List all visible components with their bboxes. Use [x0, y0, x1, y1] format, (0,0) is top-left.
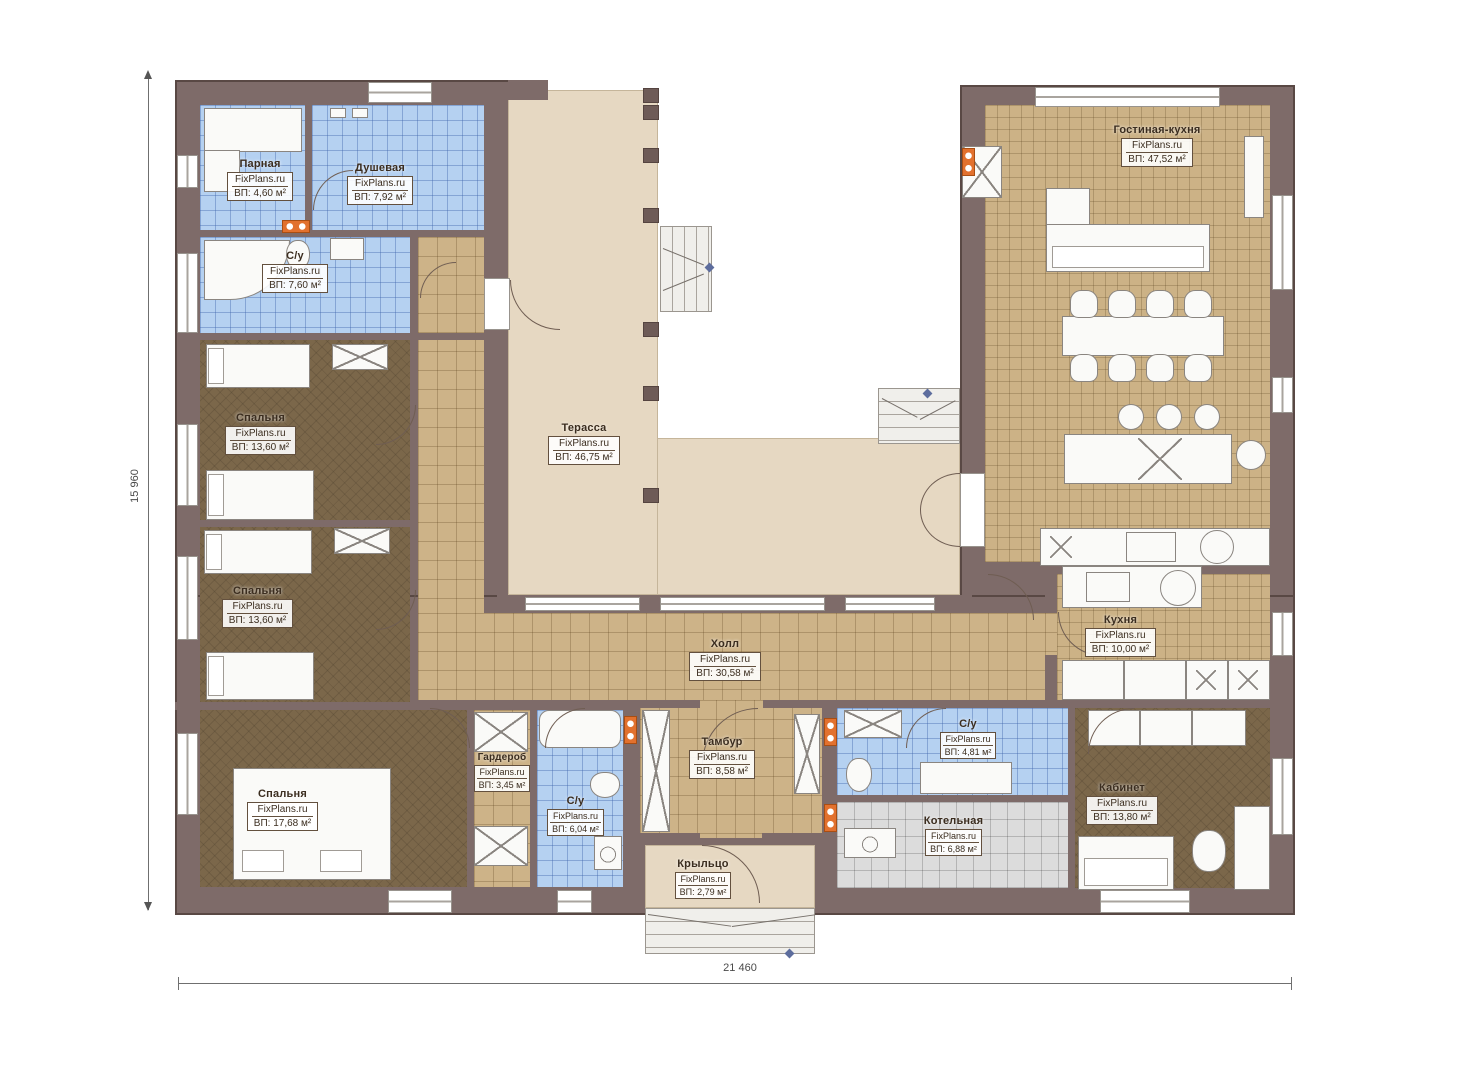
- watermark: FixPlans.ru: [694, 653, 755, 667]
- sink-cabinet-su3: [920, 762, 1012, 794]
- room-name: Гостиная-кухня: [1092, 124, 1222, 136]
- bar-stool-1: [1118, 404, 1144, 430]
- room-label-terrace: Терасса FixPlans.ru ВП: 46,75 м²: [528, 422, 640, 465]
- room-box: FixPlans.ru ВП: 3,45 м²: [474, 765, 531, 792]
- bar-stool-4: [1236, 440, 1266, 470]
- room-box: FixPlans.ru ВП: 10,00 м²: [1085, 628, 1156, 657]
- sink-basin-round: [1160, 570, 1196, 606]
- terrace-stairs-main: [878, 388, 960, 444]
- room-label-dushevaya: Душевая FixPlans.ru ВП: 7,92 м²: [320, 162, 440, 205]
- dining-chair-6: [1108, 354, 1136, 382]
- room-name: Душевая: [320, 162, 440, 174]
- island-cooktop: [1138, 438, 1182, 480]
- room-name: Спальня: [200, 585, 315, 597]
- room-name: Холл: [670, 638, 780, 650]
- room-label-su2: С/у FixPlans.ru ВП: 6,04 м²: [528, 795, 623, 837]
- window-bottom-1: [388, 890, 452, 913]
- vent-tambur-2: [824, 804, 837, 832]
- room-area: ВП: 4,81 м²: [943, 746, 994, 758]
- dining-chair-3: [1146, 290, 1174, 318]
- wall-su3-boiler: [837, 795, 1068, 802]
- room-label-bedroom3: Спальня FixPlans.ru ВП: 17,68 м²: [225, 788, 340, 831]
- sink-rect: [1086, 572, 1130, 602]
- corridor-terrace-opening: [484, 278, 510, 330]
- office-cabinet-3: [1192, 710, 1246, 746]
- room-label-parnaya: Парная FixPlans.ru ВП: 4,60 м²: [205, 158, 315, 201]
- terrace-door-opening: [960, 473, 985, 547]
- dimension-line-horizontal: [178, 983, 1292, 984]
- kitchen-cabinet-2: [1124, 660, 1186, 700]
- wardrobe-bedroom2: [334, 528, 390, 554]
- counter-sink-round: [1200, 530, 1234, 564]
- watermark: FixPlans.ru: [1126, 139, 1187, 153]
- wardrobe-bedroom1: [332, 344, 388, 370]
- window-right-4: [1272, 758, 1293, 835]
- room-box: FixPlans.ru ВП: 7,60 м²: [262, 264, 328, 293]
- window-right-2: [1272, 377, 1293, 413]
- room-label-su3: С/у FixPlans.ru ВП: 4,81 м²: [918, 718, 1018, 760]
- wall-tambur-front: [640, 833, 700, 845]
- dining-table: [1062, 316, 1224, 356]
- floor-terrace-strip: [508, 90, 658, 595]
- room-area: ВП: 10,00 м²: [1090, 643, 1151, 656]
- room-label-office: Кабинет FixPlans.ru ВП: 13,80 м²: [1062, 782, 1182, 825]
- wall-hall-s3: [585, 700, 700, 708]
- dimension-line-vertical: [148, 78, 149, 910]
- window-right-3: [1272, 612, 1293, 656]
- room-box: FixPlans.ru ВП: 2,79 м²: [675, 872, 732, 899]
- wardrobe-box-bottom: [474, 826, 528, 866]
- watermark: FixPlans.ru: [352, 177, 408, 191]
- pillow-bedroom3-left: [242, 850, 284, 872]
- terrace-stairs-side: [660, 226, 712, 312]
- room-box: FixPlans.ru ВП: 13,80 м²: [1086, 796, 1157, 825]
- sofa-seat-line: [1052, 246, 1204, 268]
- pillow-bedroom2-bottom: [208, 656, 224, 696]
- dining-chair-2: [1108, 290, 1136, 318]
- dimension-height-label: 15 960: [129, 451, 141, 521]
- vent-sauna: [282, 220, 310, 233]
- watermark: FixPlans.ru: [928, 830, 979, 843]
- counter-burner: [1050, 536, 1072, 558]
- room-box: FixPlans.ru ВП: 13,60 м²: [225, 426, 296, 455]
- wall-tambur-front2: [762, 833, 822, 845]
- terrace-column-6: [643, 386, 659, 401]
- room-name: Парная: [205, 158, 315, 170]
- terrace-column-7: [643, 488, 659, 503]
- sauna-bench-top: [204, 108, 302, 152]
- terrace-hall-window-2: [660, 597, 825, 611]
- terrace-column-1: [643, 88, 659, 103]
- wall-hall-s1: [418, 700, 430, 708]
- room-name: Гардероб: [462, 752, 542, 763]
- wall-hall-s6: [1130, 700, 1270, 708]
- terrace-column-3: [643, 148, 659, 163]
- room-area: ВП: 6,88 м²: [928, 843, 979, 855]
- toilet-su3: [846, 758, 872, 792]
- window-bottom-2: [557, 890, 592, 913]
- tv-cabinet: [1244, 136, 1264, 218]
- terrace-column-4: [643, 208, 659, 223]
- bar-stool-3: [1194, 404, 1220, 430]
- room-area: ВП: 8,58 м²: [694, 765, 750, 778]
- pillow-bedroom3-right: [320, 850, 362, 872]
- window-top-left-wing: [368, 82, 432, 103]
- wall-kitchen-left-b: [1045, 655, 1057, 700]
- dining-chair-8: [1184, 354, 1212, 382]
- room-box: FixPlans.ru ВП: 46,75 м²: [548, 436, 619, 465]
- wall-corridor-b: [410, 298, 418, 405]
- watermark: FixPlans.ru: [267, 265, 323, 279]
- office-chair: [1192, 830, 1226, 872]
- shower-fixture-2: [352, 108, 368, 118]
- room-name: Кухня: [1068, 614, 1173, 626]
- watermark: FixPlans.ru: [678, 873, 729, 886]
- dining-chair-4: [1184, 290, 1212, 318]
- room-box: FixPlans.ru ВП: 47,52 м²: [1121, 138, 1192, 167]
- vent-tambur-1: [824, 718, 837, 746]
- pillow-bedroom1-top: [208, 348, 224, 384]
- window-right-1: [1272, 195, 1293, 290]
- room-area: ВП: 46,75 м²: [553, 451, 614, 464]
- room-name: С/у: [528, 795, 623, 807]
- room-name: Тамбур: [662, 736, 782, 748]
- floor-terrace-main: [657, 438, 960, 595]
- wall-corridor-a: [410, 237, 418, 262]
- room-label-bedroom1: Спальня FixPlans.ru ВП: 13,60 м²: [203, 412, 318, 455]
- room-box: FixPlans.ru ВП: 4,81 м²: [940, 732, 997, 759]
- dimension-arrow-top: [144, 70, 152, 79]
- kitchen-cabinet-1: [1062, 660, 1124, 700]
- room-name: Спальня: [203, 412, 318, 424]
- shower-fixture-1: [330, 108, 346, 118]
- window-left-3: [177, 424, 198, 506]
- room-area: ВП: 17,68 м²: [252, 817, 313, 830]
- room-box: FixPlans.ru ВП: 7,92 м²: [347, 176, 413, 205]
- watermark: FixPlans.ru: [550, 810, 601, 823]
- room-label-hall: Холл FixPlans.ru ВП: 30,58 м²: [670, 638, 780, 681]
- room-name: Кабинет: [1062, 782, 1182, 794]
- bar-stool-2: [1156, 404, 1182, 430]
- room-label-boiler: Котельная FixPlans.ru ВП: 6,88 м²: [896, 815, 1011, 857]
- vent-su2: [624, 716, 637, 744]
- wall-su1-bedroom1: [200, 333, 484, 340]
- watermark: FixPlans.ru: [477, 766, 528, 779]
- floor-plan: Парная FixPlans.ru ВП: 4,60 м² Душевая F…: [0, 0, 1474, 1080]
- room-area: ВП: 6,04 м²: [550, 823, 601, 835]
- room-box: FixPlans.ru ВП: 17,68 м²: [247, 802, 318, 831]
- room-area: ВП: 13,60 м²: [230, 441, 291, 454]
- room-name: Котельная: [896, 815, 1011, 827]
- wall-kitchen-left-a: [1045, 574, 1057, 612]
- room-box: FixPlans.ru ВП: 8,58 м²: [689, 750, 755, 779]
- watermark: FixPlans.ru: [943, 733, 994, 746]
- watermark: FixPlans.ru: [232, 173, 288, 187]
- porch-steps: [645, 908, 815, 954]
- room-area: ВП: 47,52 м²: [1126, 153, 1187, 166]
- wall-corridor-c: [410, 445, 418, 590]
- watermark: FixPlans.ru: [694, 751, 750, 765]
- tambur-wardrobe-right: [794, 714, 820, 794]
- dining-chair-7: [1146, 354, 1174, 382]
- su3-wardrobe: [844, 710, 902, 738]
- watermark: FixPlans.ru: [1090, 629, 1151, 643]
- room-name: С/у: [918, 718, 1018, 730]
- office-sofa-seat: [1084, 858, 1168, 886]
- room-name: С/у: [240, 250, 350, 262]
- room-name: Терасса: [528, 422, 640, 434]
- wall-terrace-stub: [508, 80, 548, 100]
- room-area: ВП: 13,80 м²: [1091, 811, 1152, 824]
- wall-hall-s5: [948, 700, 1085, 708]
- room-label-porch: Крыльцо FixPlans.ru ВП: 2,79 м²: [648, 858, 758, 900]
- cabinet-burner-2: [1238, 670, 1258, 690]
- dining-chair-1: [1070, 290, 1098, 318]
- wall-sauna-su1: [200, 230, 490, 237]
- terrace-column-5: [643, 322, 659, 337]
- dimension-tick-left: [178, 977, 179, 990]
- wall-corridor-d: [410, 630, 418, 700]
- room-box: FixPlans.ru ВП: 4,60 м²: [227, 172, 293, 201]
- pillow-bedroom1-bottom: [208, 474, 224, 516]
- terrace-hall-window-1: [525, 597, 640, 611]
- room-area: ВП: 7,60 м²: [267, 279, 323, 292]
- watermark: FixPlans.ru: [553, 437, 614, 451]
- wall-bedroom1-2: [200, 520, 410, 527]
- window-left-5: [177, 733, 198, 815]
- cabinet-burner-1: [1196, 670, 1216, 690]
- watermark: FixPlans.ru: [227, 600, 288, 614]
- room-area: ВП: 3,45 м²: [477, 779, 528, 791]
- boiler-unit: [844, 828, 896, 858]
- terrace-column-2: [643, 105, 659, 120]
- window-left-1: [177, 155, 198, 188]
- window-left-4: [177, 556, 198, 640]
- room-label-bedroom2: Спальня FixPlans.ru ВП: 13,60 м²: [200, 585, 315, 628]
- window-left-2: [177, 253, 198, 333]
- dining-chair-5: [1070, 354, 1098, 382]
- watermark: FixPlans.ru: [1091, 797, 1152, 811]
- room-area: ВП: 30,58 м²: [694, 667, 755, 680]
- dimension-tick-right: [1291, 977, 1292, 990]
- wall-hall-s2: [472, 700, 545, 708]
- room-label-su1: С/у FixPlans.ru ВП: 7,60 м²: [240, 250, 350, 293]
- window-bottom-3: [1100, 890, 1190, 913]
- pillow-bedroom2-top: [206, 534, 222, 570]
- room-box: FixPlans.ru ВП: 6,04 м²: [547, 809, 604, 836]
- vent-fireplace: [962, 148, 975, 176]
- watermark: FixPlans.ru: [230, 427, 291, 441]
- room-box: FixPlans.ru ВП: 6,88 м²: [925, 829, 982, 856]
- dimension-width-label: 21 460: [690, 962, 790, 974]
- room-area: ВП: 7,92 м²: [352, 191, 408, 204]
- office-cabinet-2: [1140, 710, 1192, 746]
- room-label-living: Гостиная-кухня FixPlans.ru ВП: 47,52 м²: [1092, 124, 1222, 167]
- wall-hall-s4: [763, 700, 905, 708]
- room-area: ВП: 13,60 м²: [227, 614, 288, 627]
- room-label-tambur: Тамбур FixPlans.ru ВП: 8,58 м²: [662, 736, 782, 779]
- window-top-right-wing: [1035, 87, 1220, 107]
- room-name: Крыльцо: [648, 858, 758, 870]
- dimension-arrow-bottom: [144, 902, 152, 911]
- wardrobe-box-top: [474, 712, 528, 752]
- room-name: Спальня: [225, 788, 340, 800]
- room-box: FixPlans.ru ВП: 13,60 м²: [222, 599, 293, 628]
- room-box: FixPlans.ru ВП: 30,58 м²: [689, 652, 760, 681]
- room-label-kitchen: Кухня FixPlans.ru ВП: 10,00 м²: [1068, 614, 1173, 657]
- office-desk: [1234, 806, 1270, 890]
- terrace-hall-window-3: [845, 597, 935, 611]
- room-area: ВП: 2,79 м²: [678, 886, 729, 898]
- counter-cooktop: [1126, 532, 1176, 562]
- room-area: ВП: 4,60 м²: [232, 187, 288, 200]
- watermark: FixPlans.ru: [252, 803, 313, 817]
- room-label-wardrobe: Гардероб FixPlans.ru ВП: 3,45 м²: [462, 752, 542, 793]
- wall-bedroom2-3: [175, 702, 418, 710]
- washer-su2: [594, 836, 622, 870]
